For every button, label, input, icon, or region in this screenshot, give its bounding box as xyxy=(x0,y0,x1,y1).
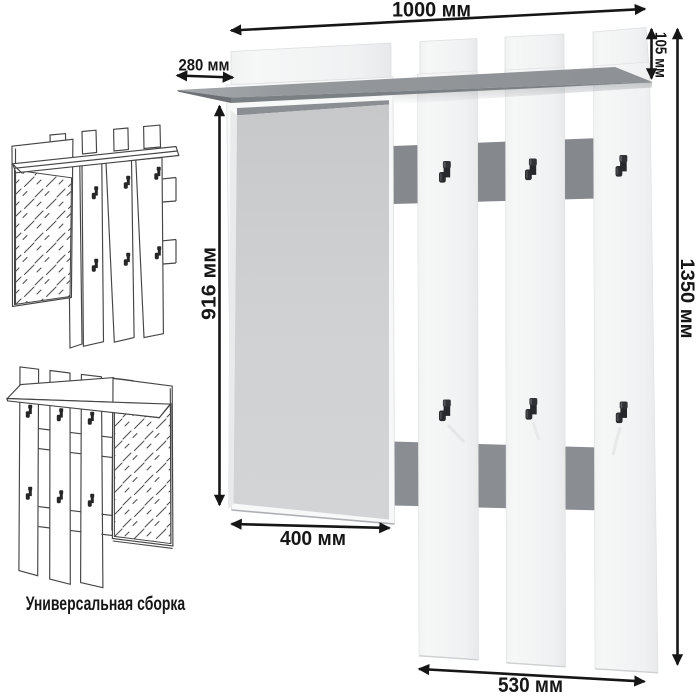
svg-text:280 мм: 280 мм xyxy=(179,56,230,75)
svg-text:1350 мм: 1350 мм xyxy=(676,259,698,339)
svg-text:105 мм: 105 мм xyxy=(652,32,669,78)
svg-text:400 мм: 400 мм xyxy=(280,527,346,550)
svg-text:1000 мм: 1000 мм xyxy=(392,0,471,22)
svg-text:916 мм: 916 мм xyxy=(199,247,221,320)
svg-text:530 мм: 530 мм xyxy=(498,674,563,697)
svg-text:Универсальная сборка: Универсальная сборка xyxy=(26,594,186,615)
